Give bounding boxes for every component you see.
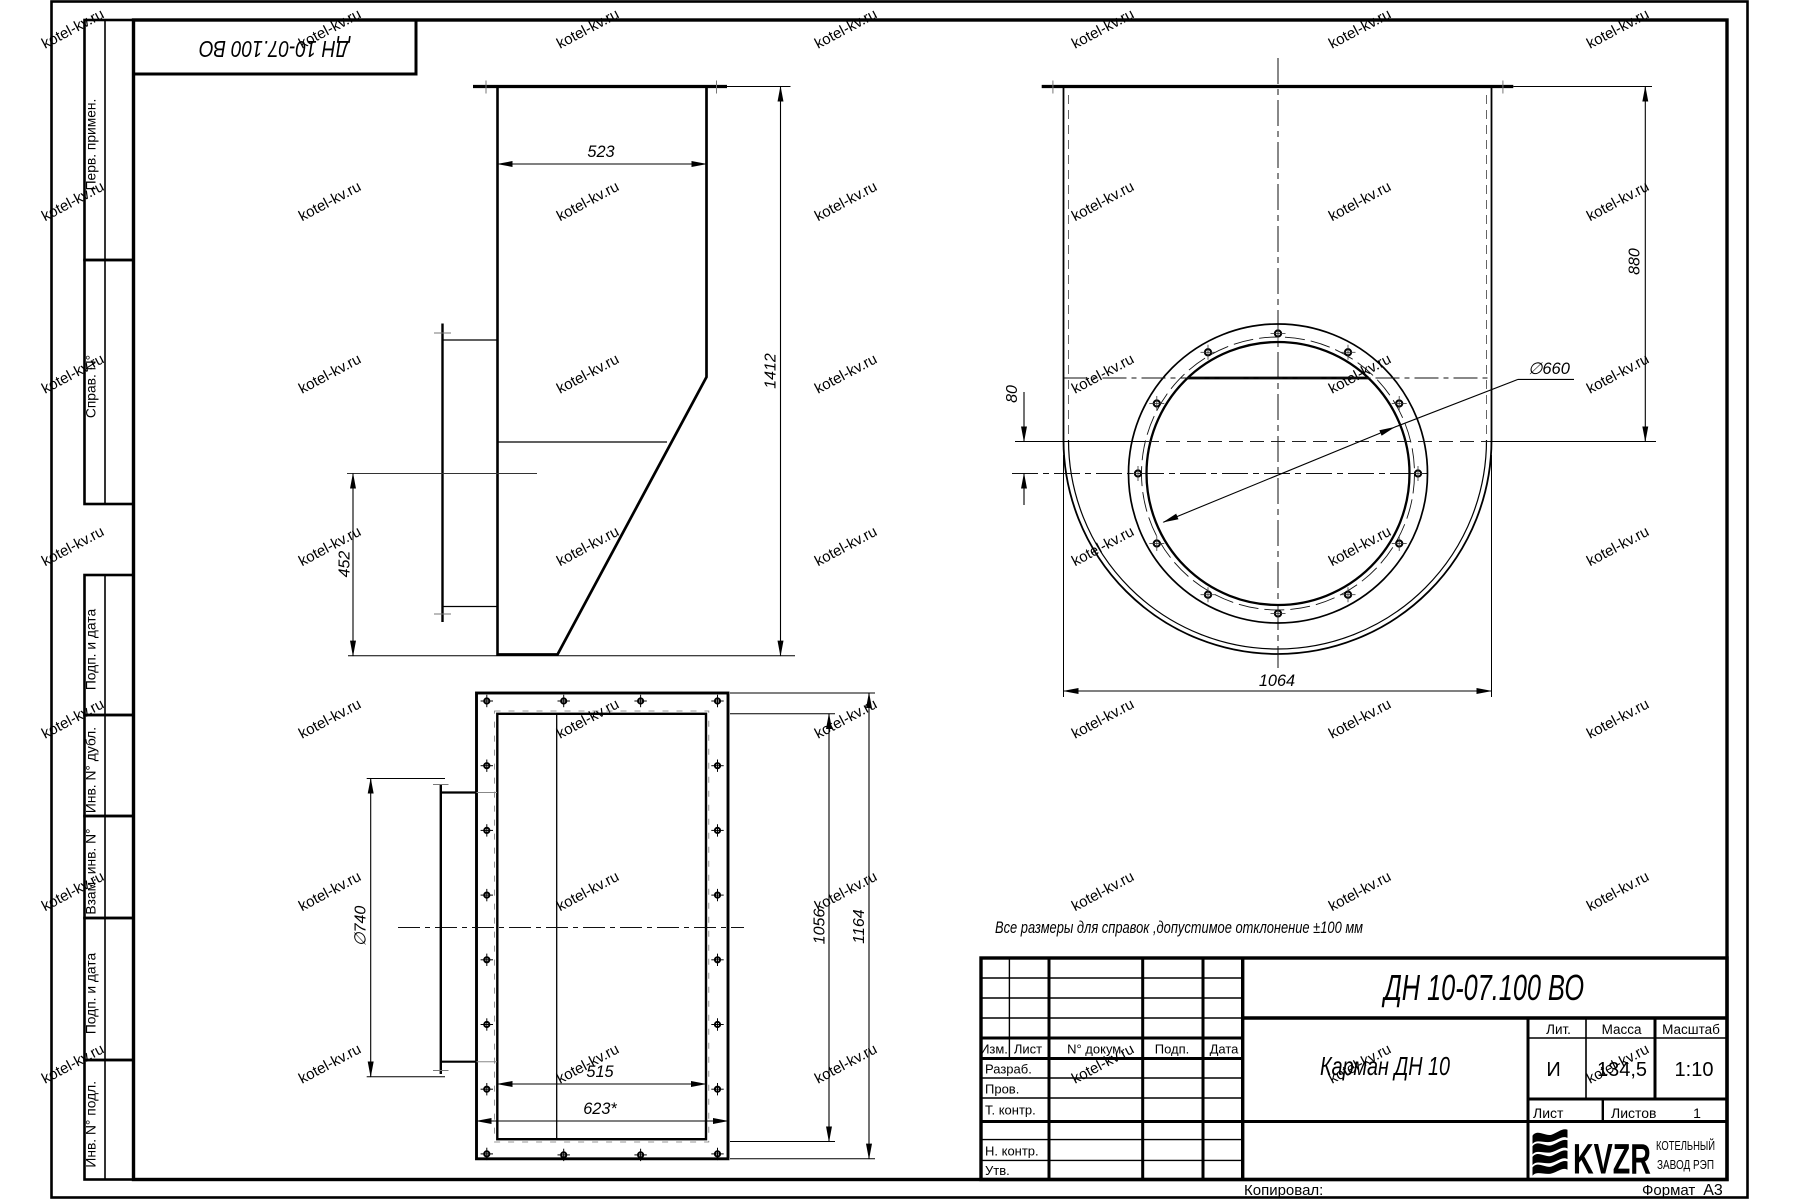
svg-text:1412: 1412 — [763, 353, 780, 389]
svg-text:Карман ДН 10: Карман ДН 10 — [1320, 1051, 1450, 1081]
svg-text:Пров.: Пров. — [985, 1082, 1019, 1097]
svg-text:880: 880 — [1627, 248, 1644, 275]
svg-text:1:10: 1:10 — [1675, 1059, 1714, 1081]
svg-text:KVZR: KVZR — [1573, 1135, 1651, 1183]
svg-text:80: 80 — [1004, 385, 1021, 403]
svg-text:Инв. N° дубл.: Инв. N° дубл. — [84, 727, 99, 813]
svg-text:1164: 1164 — [851, 909, 868, 944]
svg-text:Копировал:: Копировал: — [1244, 1182, 1323, 1199]
svg-text:Инв. N° подл.: Инв. N° подл. — [84, 1081, 99, 1168]
svg-text:Дата: Дата — [1210, 1042, 1240, 1057]
svg-text:Разраб.: Разраб. — [985, 1062, 1032, 1077]
svg-text:Лит.: Лит. — [1546, 1022, 1571, 1037]
svg-text:1056: 1056 — [812, 909, 829, 945]
svg-text:623*: 623* — [583, 1100, 617, 1118]
svg-text:Н. контр.: Н. контр. — [985, 1144, 1039, 1159]
svg-text:ЗАВОД РЭП: ЗАВОД РЭП — [1657, 1158, 1714, 1172]
svg-text:515: 515 — [586, 1063, 614, 1081]
svg-text:Подп. и дата: Подп. и дата — [84, 953, 99, 1035]
svg-text:∅660: ∅660 — [1528, 360, 1571, 378]
svg-text:1: 1 — [1693, 1105, 1701, 1121]
svg-text:И: И — [1546, 1059, 1560, 1081]
svg-text:1064: 1064 — [1259, 672, 1295, 690]
svg-text:А3: А3 — [1703, 1182, 1723, 1199]
svg-text:∅740: ∅740 — [353, 906, 370, 947]
svg-text:Подп. и дата: Подп. и дата — [84, 609, 99, 691]
svg-text:N° докум.: N° докум. — [1067, 1042, 1125, 1057]
svg-text:Формат: Формат — [1642, 1182, 1695, 1199]
svg-text:ДН 10-07.100 ВО: ДН 10-07.100 ВО — [199, 36, 352, 62]
svg-text:Утв.: Утв. — [985, 1163, 1010, 1178]
svg-text:Т. контр.: Т. контр. — [985, 1103, 1036, 1118]
svg-text:Взам. инв. N°: Взам. инв. N° — [84, 828, 99, 914]
svg-text:КОТЕЛЬНЫЙ: КОТЕЛЬНЫЙ — [1656, 1138, 1715, 1153]
svg-text:Изм.: Изм. — [980, 1042, 1008, 1057]
svg-text:Масштаб: Масштаб — [1662, 1022, 1720, 1037]
svg-text:Все размеры для справок ,допус: Все размеры для справок ,допустимое откл… — [995, 919, 1363, 937]
svg-text:Лист: Лист — [1014, 1042, 1042, 1057]
svg-text:134,5: 134,5 — [1597, 1059, 1647, 1081]
svg-text:Подп.: Подп. — [1155, 1042, 1190, 1057]
svg-text:Лист: Лист — [1533, 1105, 1564, 1121]
svg-text:Перв. примен.: Перв. примен. — [84, 99, 99, 191]
svg-text:452: 452 — [337, 551, 354, 578]
svg-text:Справ. N°: Справ. N° — [84, 355, 99, 418]
svg-text:Листов: Листов — [1611, 1105, 1657, 1121]
svg-text:ДН 10-07.100 ВО: ДН 10-07.100 ВО — [1381, 967, 1584, 1008]
svg-text:523: 523 — [587, 143, 614, 161]
svg-text:Масса: Масса — [1602, 1022, 1642, 1037]
